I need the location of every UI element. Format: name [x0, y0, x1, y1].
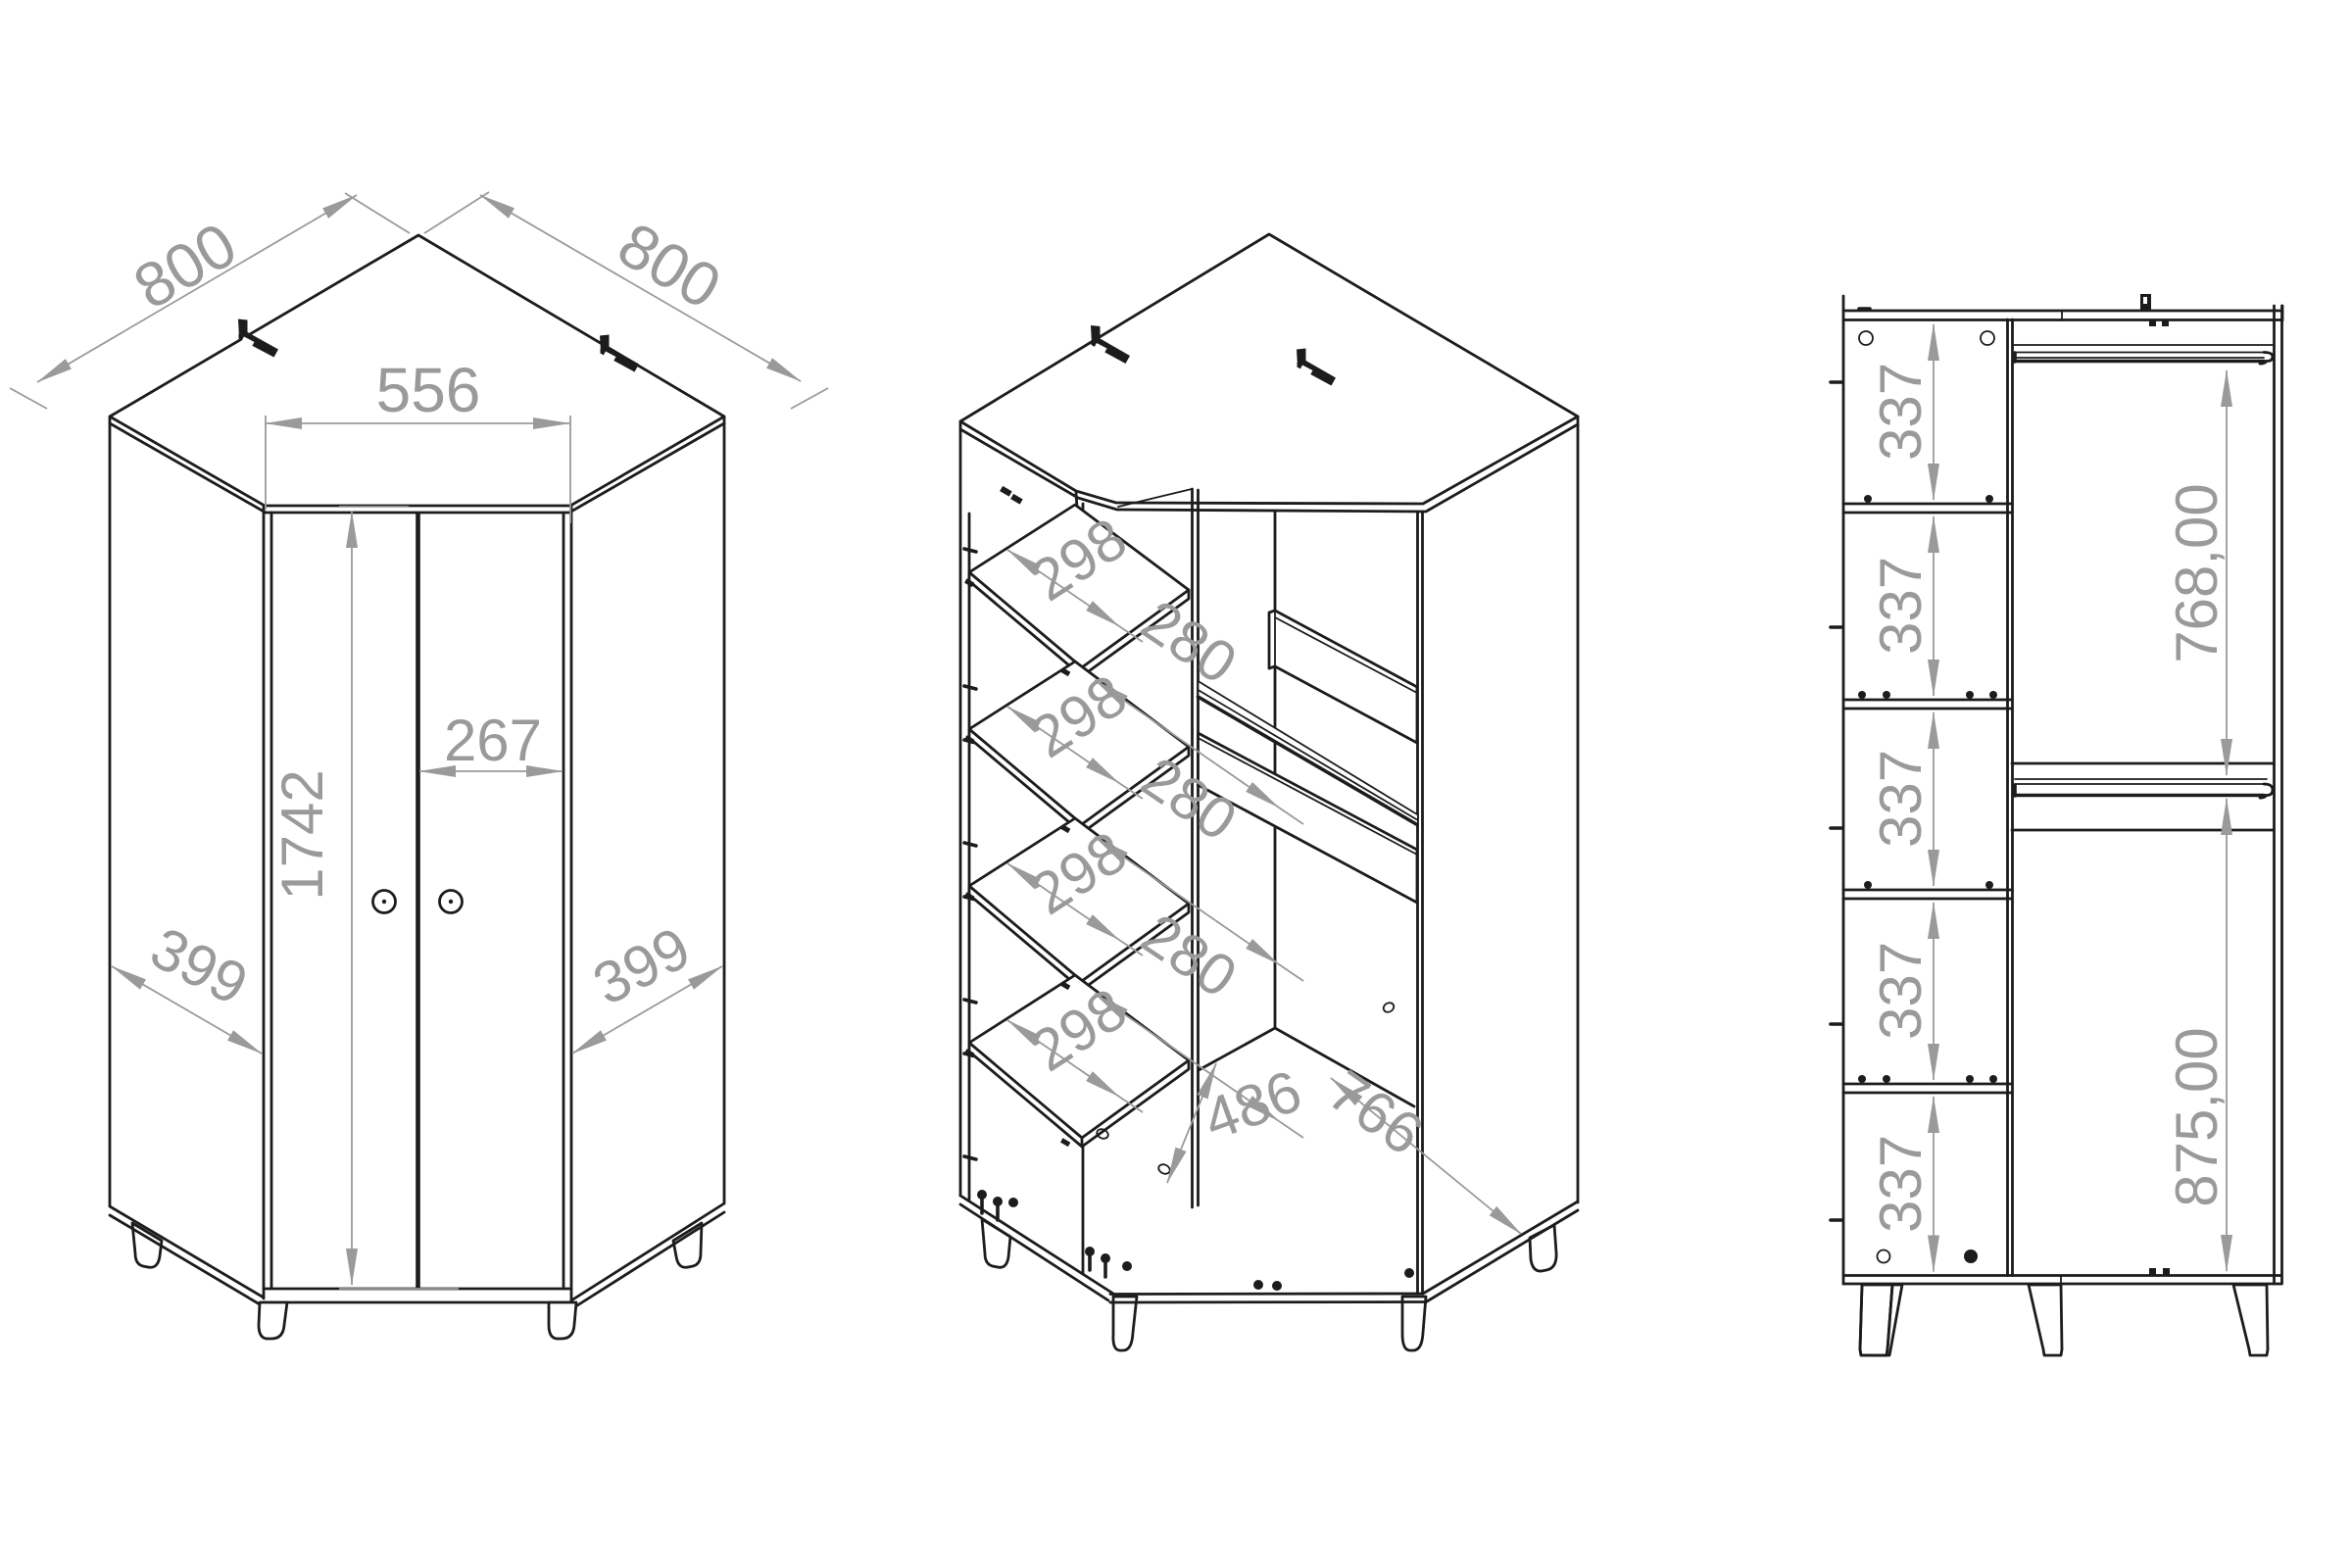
svg-text:1742: 1742	[269, 769, 335, 900]
svg-text:399: 399	[140, 914, 258, 1017]
svg-text:800: 800	[607, 209, 733, 322]
svg-text:556: 556	[376, 355, 481, 425]
svg-text:768,00: 768,00	[2164, 483, 2229, 663]
svg-text:337: 337	[1868, 557, 1934, 655]
svg-text:337: 337	[1868, 1135, 1934, 1233]
svg-text:337: 337	[1868, 363, 1934, 461]
svg-text:399: 399	[583, 914, 701, 1017]
svg-text:875,00: 875,00	[2164, 1027, 2229, 1207]
svg-text:337: 337	[1868, 942, 1934, 1040]
svg-text:267: 267	[444, 708, 542, 773]
svg-text:337: 337	[1868, 750, 1934, 848]
svg-text:800: 800	[122, 209, 249, 322]
